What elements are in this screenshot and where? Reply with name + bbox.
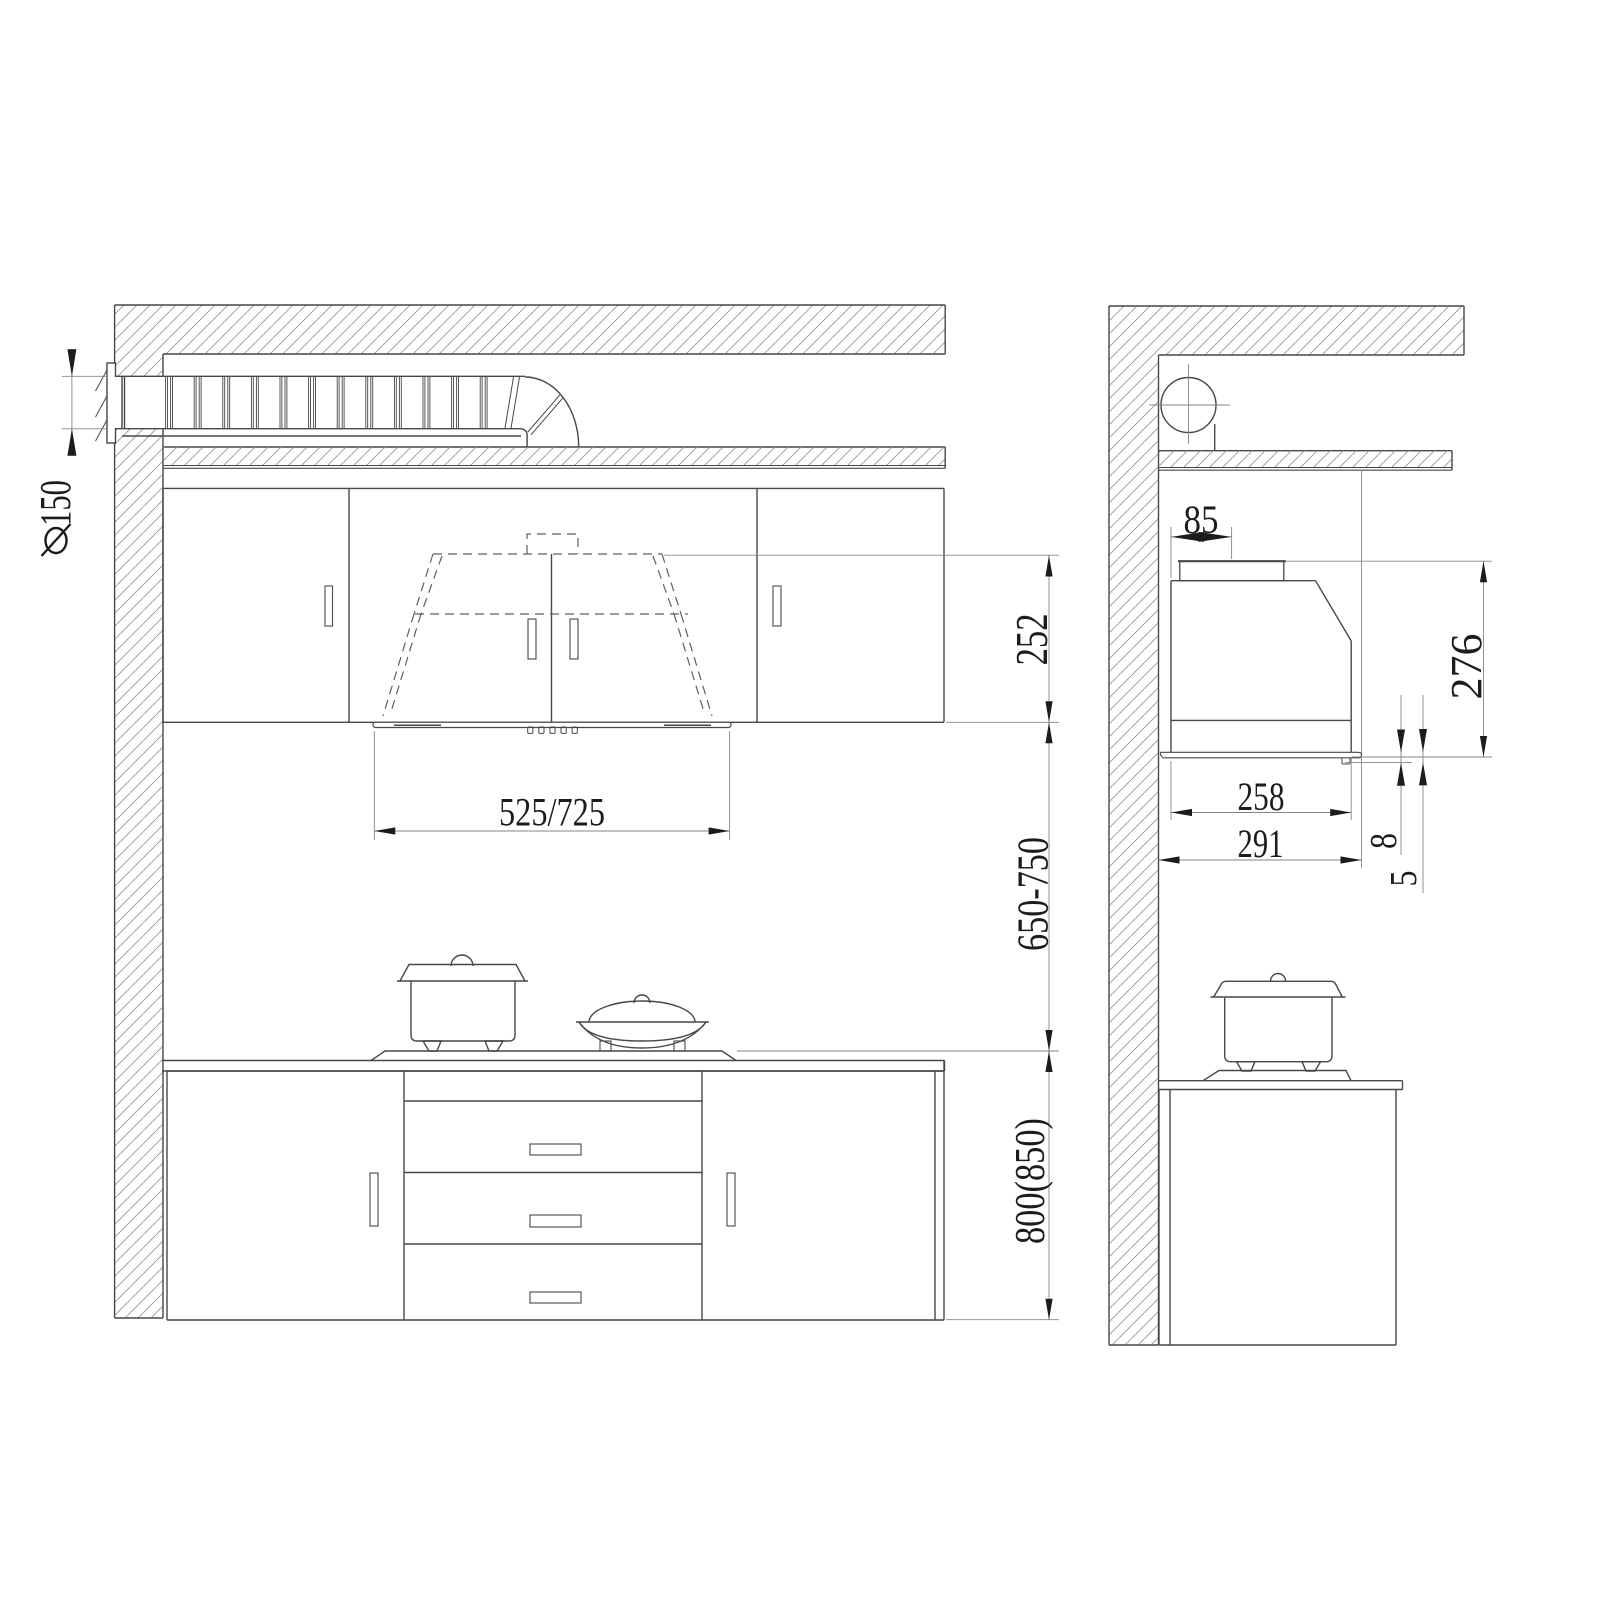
svg-text:5: 5: [1383, 871, 1425, 887]
svg-text:800(850): 800(850): [1008, 1118, 1054, 1244]
svg-text:650-750: 650-750: [1008, 837, 1057, 951]
svg-text:85: 85: [1184, 497, 1219, 542]
svg-text:8: 8: [1363, 833, 1405, 849]
svg-text:276: 276: [1442, 634, 1491, 700]
svg-text:258: 258: [1238, 774, 1285, 819]
svg-text:150: 150: [31, 480, 80, 526]
svg-text:291: 291: [1238, 821, 1284, 866]
svg-text:252: 252: [1006, 613, 1057, 665]
svg-text:525/725: 525/725: [499, 790, 605, 835]
